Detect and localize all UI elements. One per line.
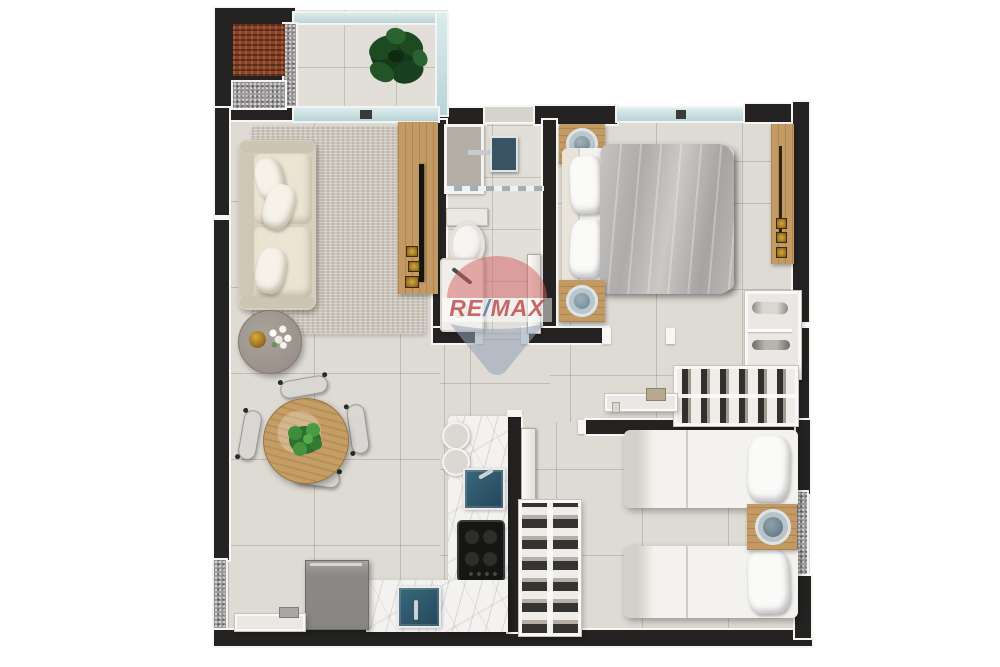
remax-watermark-text: RE/MAX [449,295,545,321]
floor-plan-canvas: RE/MAX [0,0,1000,667]
wardrobe-knob-gold [776,232,787,243]
cooktop [459,522,503,580]
gold-bowl [249,331,266,348]
shelf-item [752,340,790,350]
sofa-armrest-bottom [240,296,314,308]
shower-glass-partition [446,186,544,191]
counter-stool [442,422,470,450]
bedroom1-door-trim-left [602,328,611,344]
right-wall-bedroom2-upper [796,420,810,494]
hall-shelf-bracket [612,402,620,413]
bed-pillow [747,435,791,502]
nightstand-plant-bowl-center [763,517,783,537]
balloon-top-red [447,256,547,298]
sofa-armrest-top [240,141,314,153]
bedroom2-door [521,428,536,504]
bedroom1-window-handle [676,110,686,119]
shelf-item [752,301,788,314]
bottom-wall [214,630,812,646]
balcony-divider-strip [284,24,296,106]
bedroom2-door-trim [578,420,586,434]
shelf-unit-divider [748,329,792,332]
kitchen-wall-end-trim [507,410,522,417]
left-wall-lower [214,220,229,560]
granite-mat [233,82,285,108]
right-wall-upper [793,102,809,322]
bed-duvet [600,144,734,294]
remax-watermark-logo: RE/MAX [402,246,592,381]
sofa-backrest [239,152,254,297]
bedroom1-door-trim-right [666,328,675,344]
hall-shelf-item [646,388,666,401]
grill-mat [233,24,285,76]
left-wall-upper [215,108,229,216]
living-window-handle [360,110,372,119]
dining-centerpiece-plant [282,416,328,464]
wardrobe-knob-gold [776,247,787,258]
top-wall-light-segment [485,107,535,122]
bed-pillow [747,549,791,614]
shoe-rack [519,500,581,636]
balcony-plant [356,14,436,98]
shower-head [490,136,518,172]
kitchen-shelf-item [279,607,299,618]
appliance-cabinet [305,560,369,630]
shower-niche [444,124,484,194]
clothes-rack [674,366,798,426]
wardrobe-panel [771,124,794,264]
cabinet-handle [310,563,362,566]
left-window [214,560,226,632]
bedroom2-window [797,492,807,578]
wardrobe-knob-gold [776,218,787,229]
flower-vase [266,324,294,350]
laundry-faucet [414,600,418,620]
laundry-sink [397,586,441,628]
balcony-railing-right [437,13,447,115]
balloon-bottom-blue [450,324,544,375]
